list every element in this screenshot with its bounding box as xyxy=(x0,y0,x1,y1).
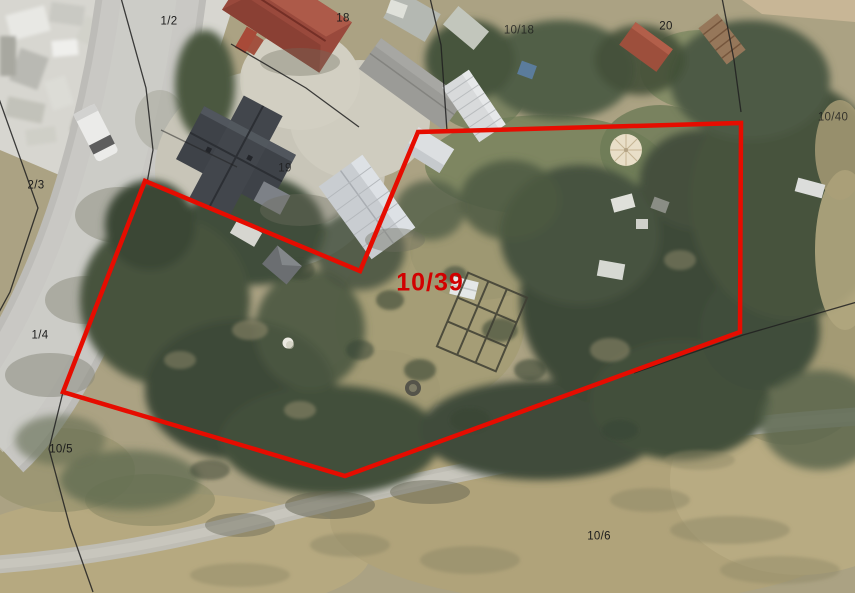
parcel-label-18: 18 xyxy=(336,13,349,25)
parcel-label-10-18: 10/18 xyxy=(504,25,534,37)
parcel-label-2-3: 2/3 xyxy=(28,180,45,192)
parcel-label-10-5: 10/5 xyxy=(49,444,73,456)
parcel-label-10-40: 10/40 xyxy=(818,112,848,124)
cadastral-overlay xyxy=(0,0,855,600)
parcel-label-19: 19 xyxy=(278,163,291,175)
parcel-label-10-6: 10/6 xyxy=(587,531,611,543)
parcel-label-20: 20 xyxy=(659,21,672,33)
highlighted-parcel-outline xyxy=(63,123,741,476)
parcel-label-1-2: 1/2 xyxy=(161,16,178,28)
highlighted-parcel-label: 10/39 xyxy=(396,271,464,296)
image-bottom-margin xyxy=(0,593,855,600)
parcel-label-1-4: 1/4 xyxy=(32,330,49,342)
aerial-map: 1/2 18 10/18 20 10/40 2/3 19 1/4 10/5 10… xyxy=(0,0,855,600)
